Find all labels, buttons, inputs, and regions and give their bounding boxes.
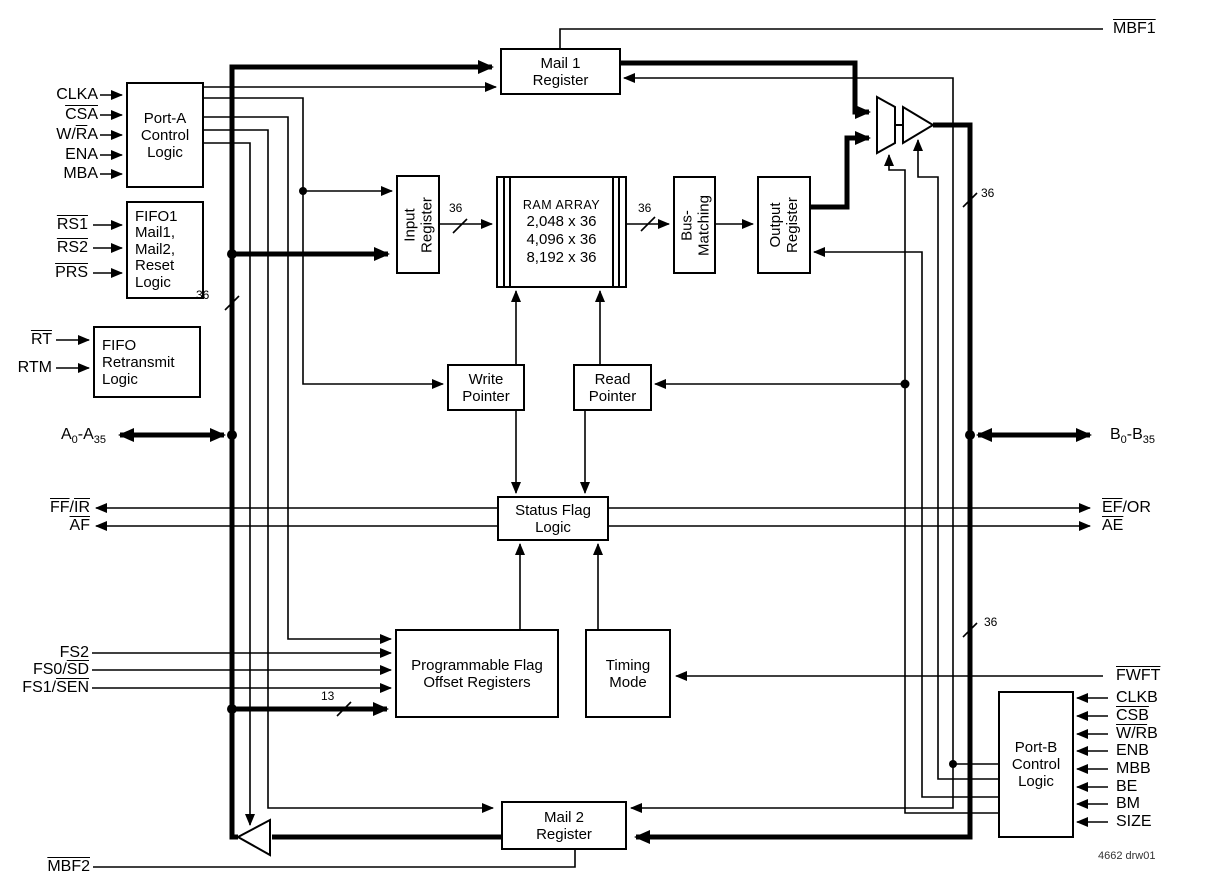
bus-mail1-mux bbox=[620, 63, 869, 112]
wire-mbf2 bbox=[93, 848, 575, 867]
signal-prs: PRS bbox=[8, 264, 88, 282]
block-diagram: Port-A Control Logic FIFO1 Mail1, Mail2,… bbox=[0, 0, 1206, 889]
box-label: Status Flag bbox=[515, 502, 591, 519]
bus-width-36: 36 bbox=[981, 187, 994, 200]
signal-fwft: FWFT bbox=[1116, 667, 1160, 685]
signal-csb: CSB bbox=[1116, 707, 1149, 725]
box-label: 4,096 x 36 bbox=[526, 231, 596, 249]
box-label: Control bbox=[141, 127, 189, 144]
port-b-control-logic-box: Port-B Control Logic bbox=[998, 691, 1074, 838]
box-label: Pointer bbox=[462, 388, 510, 405]
fifo-retransmit-logic-box: FIFO Retransmit Logic bbox=[93, 326, 201, 398]
box-label: Pointer bbox=[589, 388, 637, 405]
box-label: Logic bbox=[135, 275, 171, 292]
box-label: Output bbox=[767, 202, 784, 247]
signal-wra: W/RA bbox=[8, 126, 98, 144]
junction-dot bbox=[965, 430, 975, 440]
signal-fs0-sd: FS0/SD bbox=[8, 661, 89, 679]
bus-width-36: 36 bbox=[638, 202, 651, 215]
box-label: Mail1, bbox=[135, 225, 175, 242]
junction-dot bbox=[901, 380, 910, 389]
mail2-register-box: Mail 2 Register bbox=[501, 801, 627, 850]
signal-ef-or: EF/OR bbox=[1102, 499, 1151, 517]
junction-dot bbox=[949, 760, 957, 768]
junction-dot bbox=[227, 704, 237, 714]
bus-outputreg-mux bbox=[810, 138, 869, 207]
programmable-flag-offset-box: Programmable Flag Offset Registers bbox=[395, 629, 559, 718]
ram-array-box: RAM ARRAY 2,048 x 36 4,096 x 36 8,192 x … bbox=[496, 176, 627, 288]
signal-clka: CLKA bbox=[8, 86, 98, 104]
box-label: Port-A bbox=[144, 110, 187, 127]
box-label: Port-B bbox=[1015, 739, 1058, 756]
bus-width-36: 36 bbox=[196, 289, 209, 302]
box-label: Matching bbox=[695, 195, 712, 256]
signal-rs2: RS2 bbox=[8, 239, 88, 257]
signal-csa: CSA bbox=[8, 106, 98, 124]
signal-clkb: CLKB bbox=[1116, 689, 1158, 707]
bus-width-13: 13 bbox=[321, 690, 334, 703]
buffer-b-icon bbox=[903, 107, 933, 143]
box-label: 8,192 x 36 bbox=[526, 249, 596, 267]
input-register-box: Input Register bbox=[396, 175, 440, 274]
box-label: Mail2, bbox=[135, 242, 175, 259]
wire-mbf1 bbox=[560, 29, 1103, 48]
box-label: FIFO bbox=[102, 337, 136, 354]
box-label: Register bbox=[784, 197, 801, 253]
drawing-number: 4662 drw01 bbox=[1098, 850, 1156, 862]
junction-dot bbox=[227, 249, 237, 259]
signal-ena: ENA bbox=[8, 146, 98, 164]
output-register-box: Output Register bbox=[757, 176, 811, 274]
junction-dot bbox=[299, 187, 307, 195]
box-label: Input bbox=[401, 208, 418, 241]
bus-matching-box: Bus- Matching bbox=[673, 176, 716, 274]
mail1-register-box: Mail 1 Register bbox=[500, 48, 621, 95]
signal-mbf2: MBF2 bbox=[8, 858, 90, 876]
box-label: Logic bbox=[147, 144, 183, 161]
bus-a-trunk bbox=[232, 67, 492, 837]
box-label: Mail 2 bbox=[544, 809, 584, 826]
box-label: Control bbox=[1012, 756, 1060, 773]
signal-rs1: RS1 bbox=[8, 216, 88, 234]
box-label: Mail 1 bbox=[540, 55, 580, 72]
signal-mbb: MBB bbox=[1116, 760, 1151, 778]
box-label: Read bbox=[595, 371, 631, 388]
fifo1-reset-logic-box: FIFO1 Mail1, Mail2, Reset Logic bbox=[126, 201, 204, 299]
signal-fs1-sen: FS1/SEN bbox=[8, 679, 89, 697]
box-label: Programmable Flag bbox=[411, 657, 543, 674]
bus-width-36: 36 bbox=[984, 616, 997, 629]
junction-dot bbox=[227, 430, 237, 440]
signal-bm: BM bbox=[1116, 795, 1140, 813]
box-label: Reset bbox=[135, 258, 174, 275]
signal-rt: RT bbox=[8, 331, 52, 349]
box-label: FIFO1 bbox=[135, 209, 178, 226]
slash-36-b bbox=[453, 219, 467, 233]
box-label: Logic bbox=[102, 371, 138, 388]
wire-porta-buffer-a bbox=[203, 143, 250, 825]
buffer-a-icon bbox=[238, 820, 270, 855]
box-label: Register bbox=[418, 197, 435, 253]
signal-enb: ENB bbox=[1116, 742, 1149, 760]
signal-mbf1: MBF1 bbox=[1113, 20, 1156, 38]
wire-portb-mux bbox=[889, 155, 998, 813]
signal-wrb: W/RB bbox=[1116, 725, 1158, 743]
mux-b bbox=[877, 97, 895, 153]
box-label: Timing bbox=[606, 657, 650, 674]
wire-portb-buffer-b bbox=[918, 140, 998, 779]
read-pointer-box: Read Pointer bbox=[573, 364, 652, 411]
box-label: Logic bbox=[1018, 773, 1054, 790]
signal-a0-a35: A0-A35 bbox=[8, 426, 106, 449]
box-label: Bus- bbox=[678, 210, 695, 241]
signal-be: BE bbox=[1116, 778, 1137, 796]
box-label: Mode bbox=[609, 674, 647, 691]
box-label: Register bbox=[536, 826, 592, 843]
signal-size: SIZE bbox=[1116, 813, 1152, 831]
signal-af: AF bbox=[8, 517, 90, 535]
signal-mba: MBA bbox=[8, 165, 98, 183]
signal-b0-b35: B0-B35 bbox=[1110, 426, 1155, 449]
port-a-control-logic-box: Port-A Control Logic bbox=[126, 82, 204, 188]
box-label: Register bbox=[533, 72, 589, 89]
box-label: RAM ARRAY bbox=[523, 197, 600, 213]
box-label: Retransmit bbox=[102, 354, 175, 371]
box-label: 2,048 x 36 bbox=[526, 213, 596, 231]
box-label: Logic bbox=[535, 519, 571, 536]
signal-fs2: FS2 bbox=[8, 644, 89, 662]
signal-rtm: RTM bbox=[8, 359, 52, 377]
timing-mode-box: Timing Mode bbox=[585, 629, 671, 718]
signal-ffir: FF/IR bbox=[8, 499, 90, 517]
write-pointer-box: Write Pointer bbox=[447, 364, 525, 411]
signal-ae: AE bbox=[1102, 517, 1123, 535]
box-label: Write bbox=[469, 371, 504, 388]
status-flag-logic-box: Status Flag Logic bbox=[497, 496, 609, 541]
bus-width-36: 36 bbox=[449, 202, 462, 215]
box-label: Offset Registers bbox=[423, 674, 530, 691]
